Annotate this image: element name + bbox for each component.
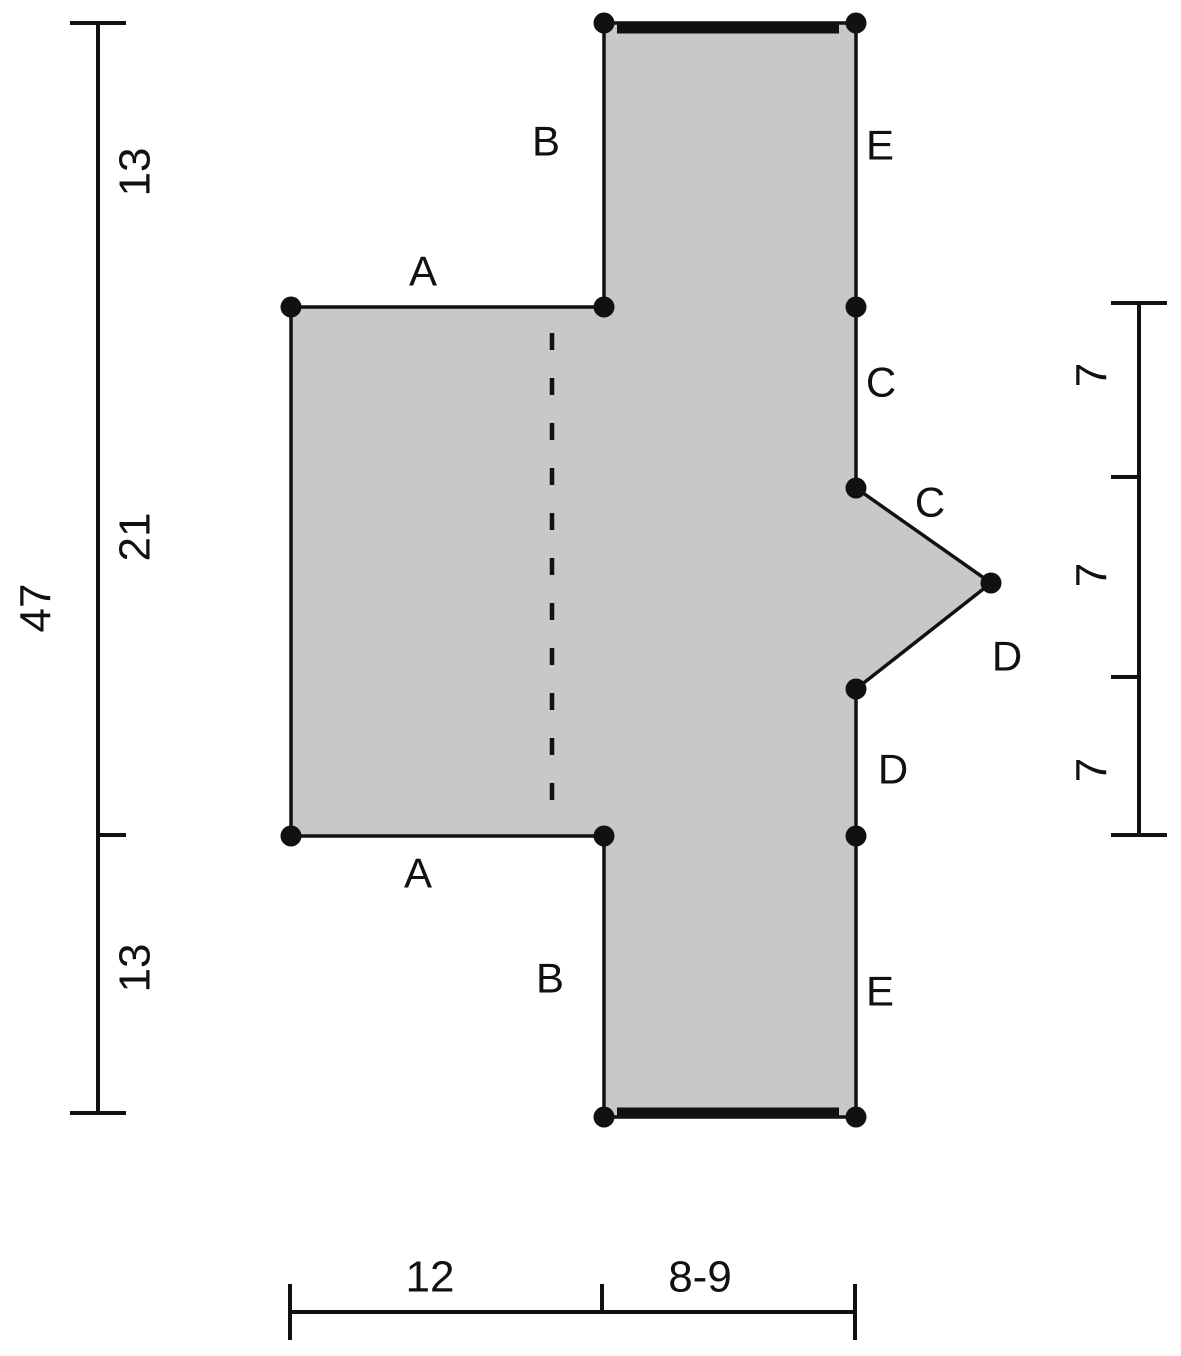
vertex-dot xyxy=(981,573,1002,594)
edge-label-E-top: E xyxy=(866,122,894,169)
vertex-dot xyxy=(846,1107,867,1128)
dim-label-13-top: 13 xyxy=(111,148,160,197)
dim-label-7-middle: 7 xyxy=(1068,563,1117,587)
vertex-dot xyxy=(594,13,615,34)
edge-label-A-top: A xyxy=(409,248,437,295)
vertex-dot xyxy=(594,826,615,847)
vertex-dot xyxy=(846,826,867,847)
vertex-dot xyxy=(281,826,302,847)
vertex-dot xyxy=(281,297,302,318)
edge-label-C-diagonal: C xyxy=(915,479,945,526)
edge-label-D-side: D xyxy=(878,746,908,793)
edge-label-D-diagonal: D xyxy=(992,633,1022,680)
vertex-dot xyxy=(594,297,615,318)
pattern-schematic-figure: BEACCDDABE13211347777128-9 xyxy=(0,0,1181,1356)
vertex-dot xyxy=(846,478,867,499)
edge-label-A-bottom: A xyxy=(404,850,432,897)
dim-label-8-9: 8-9 xyxy=(668,1253,732,1302)
vertex-dot xyxy=(846,13,867,34)
edge-label-C-side: C xyxy=(866,359,896,406)
dim-label-12: 12 xyxy=(406,1253,455,1302)
dim-label-47-total: 47 xyxy=(12,584,61,633)
dim-label-7-top: 7 xyxy=(1068,363,1117,387)
vertex-dot xyxy=(594,1107,615,1128)
vertex-dot xyxy=(846,297,867,318)
dim-label-13-bottom: 13 xyxy=(111,944,160,993)
vertex-dot xyxy=(846,679,867,700)
edge-label-B-top: B xyxy=(532,118,560,165)
edge-label-B-bottom: B xyxy=(536,955,564,1002)
dim-label-21: 21 xyxy=(111,513,160,562)
schematic-page: BEACCDDABE13211347777128-9 xyxy=(0,0,1181,1356)
dim-label-7-bottom: 7 xyxy=(1068,758,1117,782)
garment-panel-outline xyxy=(291,23,991,1117)
edge-label-E-bottom: E xyxy=(866,968,894,1015)
